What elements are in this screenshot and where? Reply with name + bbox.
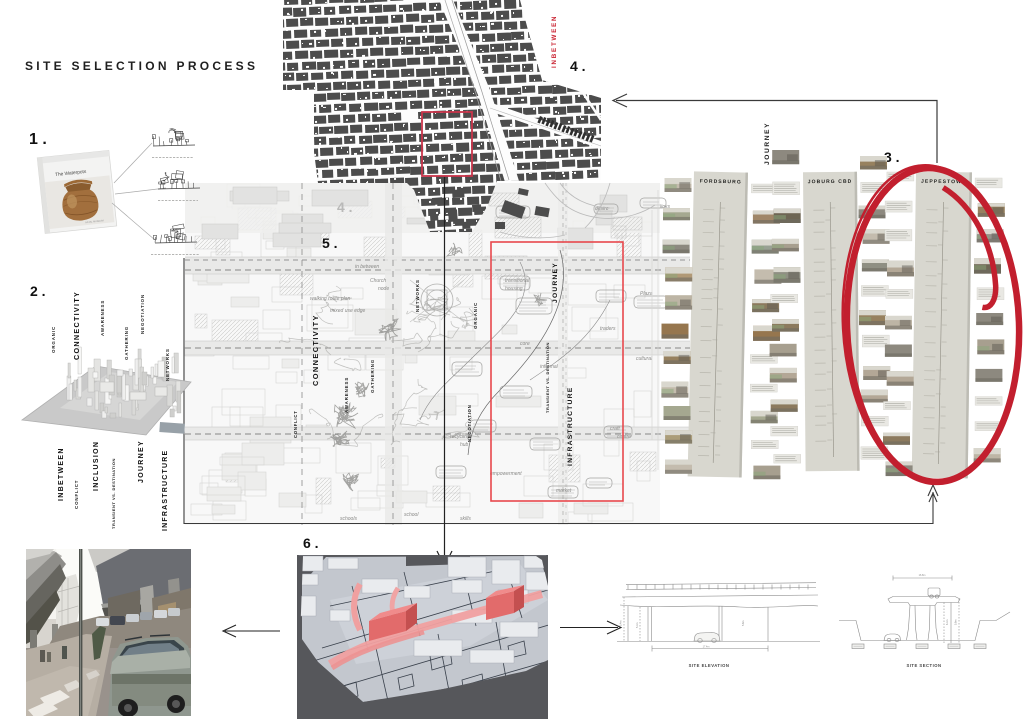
svg-text:6 .: 6 . (303, 535, 319, 551)
svg-text:JOBURG CBD: JOBURG CBD (808, 179, 853, 185)
svg-text:17.4m: 17.4m (703, 646, 710, 649)
svg-text:node: node (378, 286, 389, 292)
svg-text:INBETWEEN: INBETWEEN (551, 15, 558, 68)
svg-text:CONNECTIVITY: CONNECTIVITY (72, 291, 81, 360)
svg-text:walking route plan: walking route plan (310, 296, 351, 302)
svg-text:AWARENESS: AWARENESS (344, 377, 349, 413)
svg-text:SITE ELEVATION: SITE ELEVATION (689, 663, 730, 668)
svg-text:NEGOTIATION: NEGOTIATION (467, 404, 472, 442)
svg-text:GATHERING: GATHERING (124, 326, 129, 360)
svg-text:AWARENESS: AWARENESS (100, 300, 105, 336)
svg-text:housing: housing (505, 286, 523, 292)
svg-text:INBETWEEN: INBETWEEN (58, 447, 65, 501)
svg-text:TRANSIENT VS. DESTINATION: TRANSIENT VS. DESTINATION (111, 458, 116, 529)
svg-text:SITE SELECTION PROCESS: SITE SELECTION PROCESS (25, 59, 258, 73)
svg-text:INCLUSION: INCLUSION (93, 441, 100, 491)
svg-text:JOURNEY: JOURNEY (552, 262, 559, 303)
svg-text:JOURNEY: JOURNEY (764, 122, 771, 165)
svg-text:NETWORKS: NETWORKS (165, 348, 170, 381)
svg-text:cultural: cultural (636, 356, 653, 362)
svg-text:5.8m: 5.8m (955, 620, 958, 625)
svg-text:ORGANIC: ORGANIC (473, 302, 478, 329)
svg-text:traders: traders (600, 326, 616, 332)
svg-text:craft: craft (610, 426, 620, 432)
svg-text:empowerment: empowerment (490, 471, 522, 477)
svg-text:CONFLICT: CONFLICT (74, 480, 79, 509)
svg-text:16.8m: 16.8m (919, 574, 926, 577)
svg-text:5 .: 5 . (322, 235, 338, 251)
svg-text:NETWORKS: NETWORKS (415, 279, 420, 312)
svg-text:2 .: 2 . (30, 283, 46, 299)
svg-text:6.1m: 6.1m (946, 620, 949, 625)
svg-text:5.6m: 5.6m (742, 621, 745, 626)
svg-text:4 .: 4 . (337, 199, 353, 215)
svg-text:TRANSIENT VS. DESTINATION: TRANSIENT VS. DESTINATION (545, 342, 550, 413)
svg-text:INFRASTRUCTURE: INFRASTRUCTURE (162, 450, 169, 531)
svg-text:GATHERING: GATHERING (370, 359, 375, 393)
svg-text:4 .: 4 . (570, 58, 586, 74)
svg-text:in between: in between (355, 264, 379, 270)
svg-text:JOURNEY: JOURNEY (138, 440, 145, 483)
svg-text:SITE SECTION: SITE SECTION (906, 663, 941, 668)
svg-text:INFRASTRUCTURE: INFRASTRUCTURE (567, 387, 574, 466)
svg-text:FORDSBURG: FORDSBURG (700, 179, 742, 186)
svg-text:skills: skills (460, 516, 471, 522)
svg-text:1 .: 1 . (29, 131, 47, 148)
svg-text:Church: Church (370, 278, 386, 284)
svg-text:mixed use edge: mixed use edge (330, 308, 366, 314)
svg-text:school: school (404, 512, 419, 518)
svg-text:schools: schools (340, 516, 357, 522)
svg-text:CONNECTIVITY: CONNECTIVITY (311, 314, 320, 386)
svg-text:5.4m: 5.4m (620, 621, 623, 626)
svg-text:ORGANIC: ORGANIC (51, 326, 56, 353)
svg-text:5.1m: 5.1m (636, 623, 639, 628)
svg-text:core: core (520, 341, 530, 347)
svg-text:CONFLICT: CONFLICT (293, 410, 298, 438)
svg-text:NEGOTIATION: NEGOTIATION (140, 294, 145, 334)
svg-text:centre: centre (617, 434, 631, 440)
